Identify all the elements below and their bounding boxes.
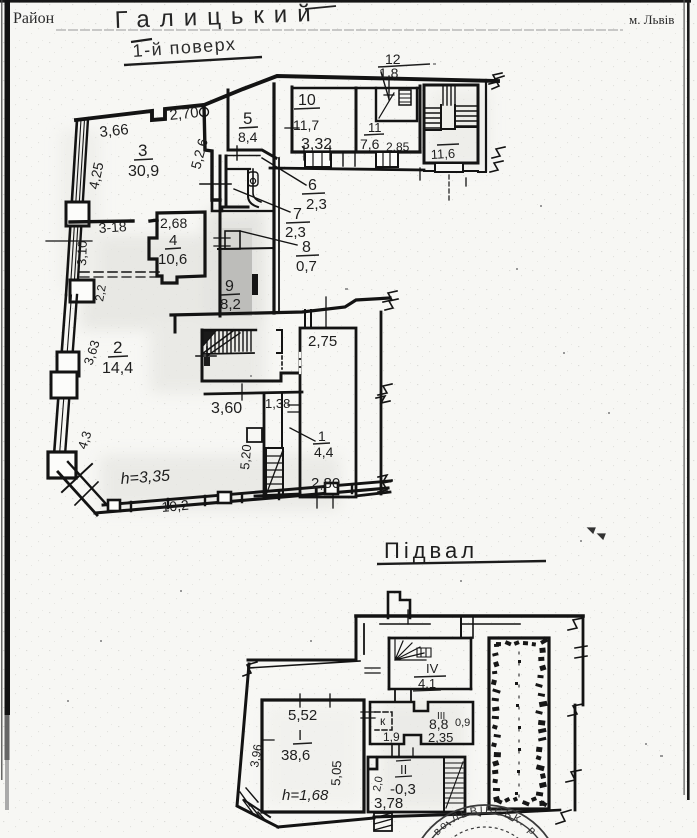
svg-text:3,78: 3,78 [374, 795, 403, 812]
svg-text:14,4: 14,4 [102, 360, 133, 377]
svg-text:3,32: 3,32 [301, 136, 332, 153]
svg-text:h=1,68: h=1,68 [282, 787, 329, 804]
svg-text:8,2: 8,2 [220, 296, 241, 313]
svg-text:1,8: 1,8 [379, 65, 399, 81]
svg-text:1: 1 [318, 428, 326, 444]
svg-text:7: 7 [293, 206, 302, 223]
svg-text:Район: Район [13, 10, 55, 27]
svg-text:2: 2 [113, 338, 122, 357]
svg-text:4: 4 [169, 232, 177, 249]
svg-text:h=3,35: h=3,35 [120, 468, 171, 488]
svg-text:3,60: 3,60 [211, 400, 242, 417]
svg-text:к: к [380, 714, 386, 728]
svg-text:2,68: 2,68 [160, 215, 187, 231]
svg-text:2,70: 2,70 [169, 104, 200, 124]
svg-text:1,9: 1,9 [383, 730, 400, 744]
svg-text:2,75: 2,75 [308, 333, 337, 350]
svg-text:10: 10 [298, 92, 316, 109]
svg-text:3,10: 3,10 [74, 240, 90, 266]
svg-text:3-18: 3-18 [98, 218, 127, 236]
svg-text:38,6: 38,6 [281, 747, 310, 764]
svg-text:I: I [298, 727, 302, 744]
svg-text:11,6: 11,6 [430, 146, 455, 162]
svg-text:2,85: 2,85 [386, 140, 410, 154]
svg-text:9: 9 [225, 278, 234, 295]
svg-text:0,9: 0,9 [455, 717, 470, 729]
svg-text:2,2: 2,2 [92, 283, 109, 302]
svg-text:5: 5 [243, 109, 252, 128]
svg-text:0,7: 0,7 [296, 258, 317, 275]
svg-text:5,52: 5,52 [288, 707, 317, 724]
svg-text:II: II [400, 762, 407, 777]
svg-text:4,4: 4,4 [314, 444, 334, 460]
svg-text:30,9: 30,9 [128, 163, 159, 180]
svg-text:6: 6 [308, 177, 317, 194]
svg-text:8,4: 8,4 [238, 129, 258, 145]
svg-text:8: 8 [302, 239, 311, 256]
svg-text:2,3: 2,3 [306, 196, 327, 213]
svg-text:2,35: 2,35 [428, 730, 453, 745]
svg-text:1,38: 1,38 [265, 396, 290, 411]
svg-text:10,6: 10,6 [158, 251, 187, 268]
svg-text:5,20: 5,20 [237, 444, 254, 471]
svg-text:м. Львів: м. Львів [629, 12, 674, 27]
svg-text:3: 3 [138, 141, 147, 160]
svg-text:4,1: 4,1 [418, 676, 436, 691]
svg-text:7,6: 7,6 [360, 136, 380, 152]
svg-text:5,05: 5,05 [328, 760, 344, 786]
svg-text:10,2: 10,2 [161, 497, 190, 515]
svg-text:III: III [437, 711, 445, 722]
svg-text:IV: IV [426, 661, 439, 676]
svg-text:11,7: 11,7 [293, 117, 319, 133]
svg-text:Підвал: Підвал [384, 538, 478, 563]
svg-text:11: 11 [368, 120, 382, 135]
svg-text:2,80: 2,80 [311, 475, 340, 492]
svg-text:3,66: 3,66 [99, 121, 130, 141]
